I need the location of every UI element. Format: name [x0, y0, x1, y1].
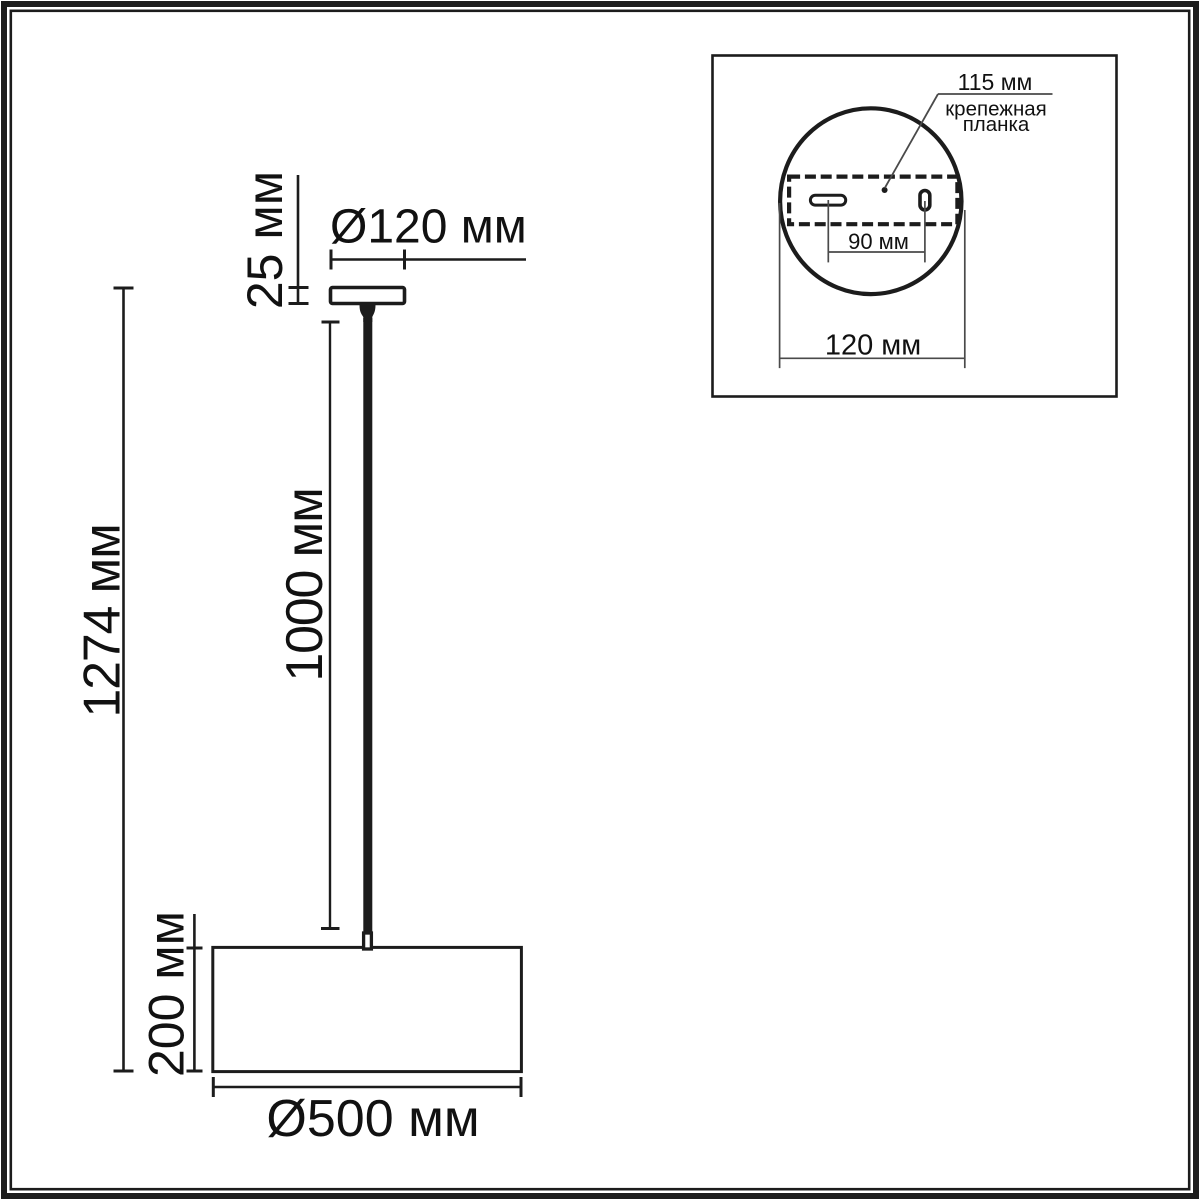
svg-text:планка: планка: [963, 113, 1030, 136]
svg-text:Ø500 мм: Ø500 мм: [266, 1090, 479, 1148]
svg-text:120 мм: 120 мм: [825, 330, 921, 362]
svg-text:25 мм: 25 мм: [237, 171, 293, 309]
svg-text:Ø120 мм: Ø120 мм: [330, 200, 527, 253]
svg-text:1000 мм: 1000 мм: [276, 488, 334, 681]
svg-text:115 мм: 115 мм: [958, 69, 1033, 95]
svg-text:1274 мм: 1274 мм: [74, 524, 132, 717]
svg-text:90 мм: 90 мм: [848, 229, 909, 254]
svg-text:200 мм: 200 мм: [139, 911, 195, 1077]
